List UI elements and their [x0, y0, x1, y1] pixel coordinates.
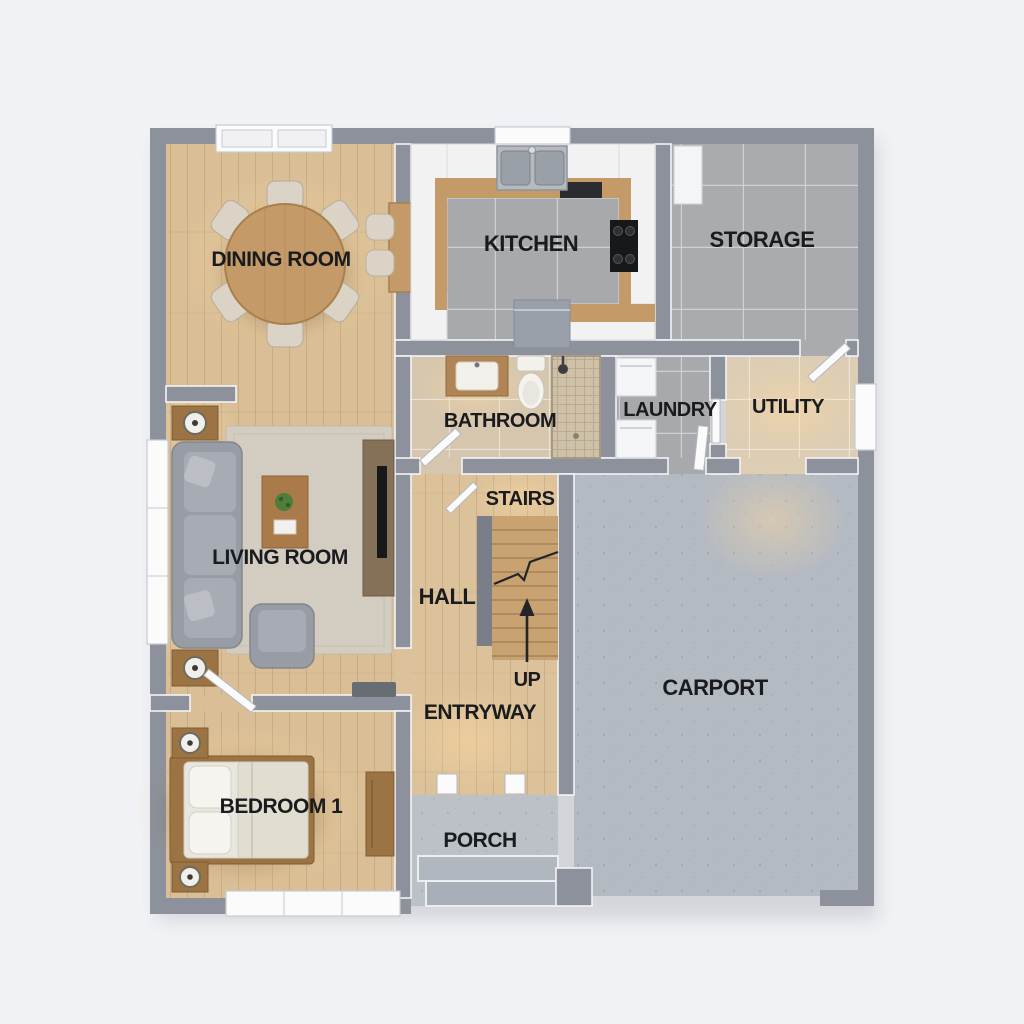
- armchair: [250, 604, 314, 668]
- shower: [552, 356, 600, 458]
- wall-exterior-right: [858, 128, 874, 906]
- bar-stool: [366, 214, 394, 240]
- washer: [616, 358, 656, 396]
- stairs-up-label: UP: [514, 669, 541, 691]
- entry-sill-left: [437, 774, 457, 794]
- utility-window: [855, 384, 876, 450]
- porch-steps: [418, 856, 558, 906]
- room-label-laundry: LAUNDRY: [623, 399, 718, 421]
- wall-stub-dining-living: [166, 386, 236, 402]
- kitchen-window: [495, 127, 570, 144]
- kitchen-island: [514, 300, 570, 348]
- room-label-utility: UTILITY: [752, 396, 825, 418]
- porch-post: [556, 868, 592, 906]
- room-label-bathroom: BATHROOM: [444, 410, 556, 432]
- cooktop: [610, 220, 638, 272]
- room-label-kitchen: KITCHEN: [484, 231, 578, 256]
- room-label-stairs: STAIRS: [486, 488, 555, 510]
- plant: [275, 493, 293, 511]
- floor-plan-svg: DINING ROOM KITCHEN STORAGE BATHROOM LAU…: [0, 0, 1024, 1024]
- sofa: [172, 442, 242, 648]
- room-label-dining-room: DINING ROOM: [211, 248, 350, 271]
- carport-curb: [820, 890, 874, 906]
- book: [274, 520, 296, 534]
- toilet: [517, 356, 545, 409]
- kitchen-sink: [497, 146, 567, 190]
- living-room-window: [147, 440, 168, 644]
- room-label-bedroom-1: BEDROOM 1: [220, 795, 344, 818]
- room-label-storage: STORAGE: [710, 227, 815, 252]
- dining-window: [216, 125, 332, 152]
- room-label-hall: HALL: [419, 584, 476, 609]
- dryer: [616, 420, 656, 458]
- nightstand-lamp: [172, 862, 208, 892]
- room-label-entryway: ENTRYWAY: [424, 701, 537, 724]
- bedroom-window: [226, 891, 400, 916]
- storage-cabinet: [674, 146, 702, 204]
- end-table-lamp: [172, 406, 218, 440]
- coffee-table: [262, 476, 308, 548]
- pillow: [189, 812, 231, 854]
- bar-stool: [366, 250, 394, 276]
- room-label-living-room: LIVING ROOM: [212, 546, 348, 569]
- floor-plan-page: DINING ROOM KITCHEN STORAGE BATHROOM LAU…: [0, 0, 1024, 1024]
- tv: [377, 466, 387, 558]
- room-label-carport: CARPORT: [662, 675, 768, 700]
- tv-console: [363, 440, 394, 596]
- room-label-porch: PORCH: [443, 829, 516, 852]
- nightstand-lamp: [172, 728, 208, 758]
- staircase: [492, 516, 558, 662]
- entry-mat: [352, 682, 396, 697]
- dresser: [366, 772, 394, 856]
- stair-half-wall: [477, 516, 492, 646]
- entry-sill-right: [505, 774, 525, 794]
